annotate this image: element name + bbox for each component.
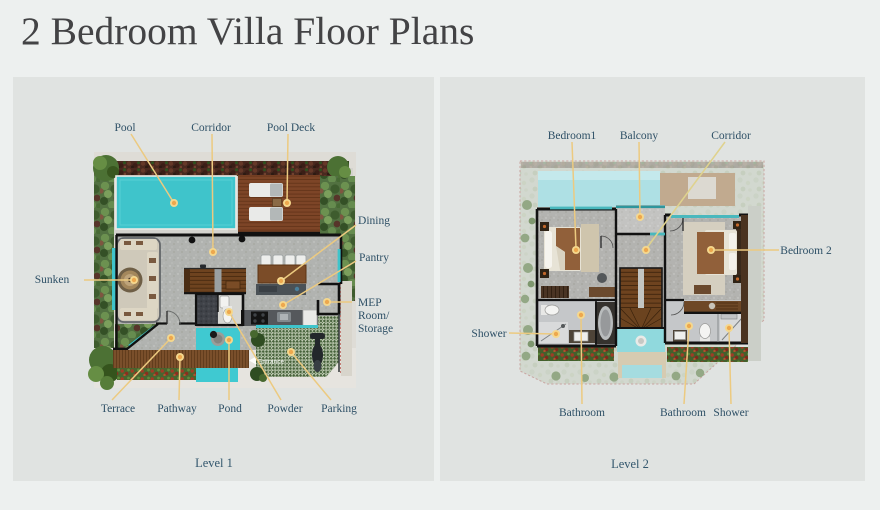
- svg-text:Bedroom1: Bedroom1: [548, 130, 597, 142]
- svg-text:Storage: Storage: [358, 323, 393, 335]
- svg-text:Corridor: Corridor: [711, 130, 751, 142]
- svg-text:Pool Deck: Pool Deck: [267, 122, 315, 134]
- svg-text:Entrance: Entrance: [258, 359, 284, 366]
- svg-text:Pantry: Pantry: [359, 252, 389, 264]
- svg-text:Sunken: Sunken: [35, 274, 70, 286]
- svg-text:Bathroom: Bathroom: [559, 407, 605, 419]
- svg-text:Pathway: Pathway: [157, 403, 197, 415]
- svg-text:Terrace: Terrace: [101, 403, 135, 415]
- svg-text:Pond: Pond: [218, 403, 242, 415]
- svg-text:Shower: Shower: [713, 407, 748, 419]
- svg-text:Bedroom 2: Bedroom 2: [780, 245, 832, 257]
- svg-text:Room/: Room/: [358, 310, 390, 322]
- svg-text:Shower: Shower: [471, 328, 506, 340]
- svg-text:Corridor: Corridor: [191, 122, 231, 134]
- svg-text:Parking: Parking: [321, 403, 357, 415]
- svg-text:Level 1: Level 1: [195, 456, 233, 470]
- svg-text:Level 2: Level 2: [611, 457, 649, 471]
- svg-text:Balcony: Balcony: [620, 130, 659, 142]
- svg-text:MEP: MEP: [358, 297, 382, 309]
- svg-text:Powder: Powder: [267, 403, 302, 415]
- svg-text:Dining: Dining: [358, 215, 390, 227]
- svg-text:Pool: Pool: [114, 122, 135, 134]
- svg-text:Bathroom: Bathroom: [660, 407, 706, 419]
